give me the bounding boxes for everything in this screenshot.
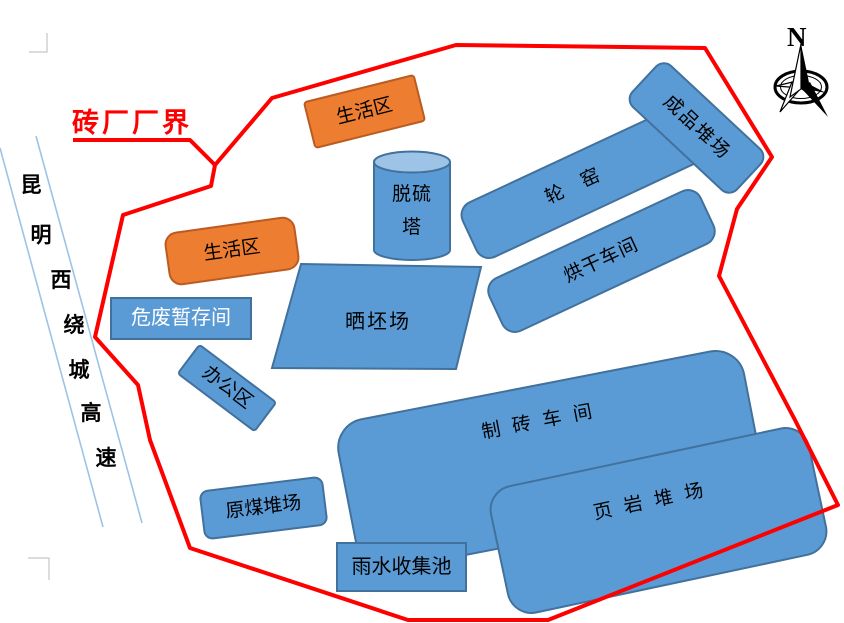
compass-blade-west (776, 80, 801, 88)
road-label-char: 速 (96, 442, 117, 472)
tower-cylinder-top (374, 152, 450, 173)
zone-label: 办公区 (198, 362, 257, 414)
brick-drying-field-label: 晒坯场 (318, 305, 438, 334)
boundary-label-leader (73, 140, 215, 165)
zone-label: 原煤堆场 (224, 493, 302, 524)
zone-hazardous-waste-storage: 危废暂存间 (110, 297, 252, 340)
compass-blade-southeast (801, 82, 828, 117)
road-label-char: 明 (31, 219, 52, 249)
zone-office-area: 办公区 (176, 343, 277, 432)
compass-rose-icon (775, 44, 828, 117)
corner-mark-bottom-left (28, 558, 49, 580)
road-label-char: 昆 (21, 169, 42, 199)
desulfurization-tower-label: 脱硫塔 (388, 178, 436, 245)
zone-living-area-top: 生活区 (302, 73, 425, 148)
zone-raw-coal-yard: 原煤堆场 (198, 476, 328, 541)
road-label-char: 绕 (64, 309, 85, 339)
compass-ring-outer (775, 71, 827, 103)
zone-living-area-left: 生活区 (163, 215, 301, 287)
road-label-char: 高 (81, 397, 102, 427)
compass-blade-east (801, 80, 826, 93)
highway-line-left (0, 148, 103, 527)
road-label-char: 西 (51, 264, 72, 294)
corner-mark-top-left (29, 33, 47, 52)
road-label-char: 城 (69, 354, 90, 384)
zone-label: 生活区 (334, 94, 395, 129)
compass-blade-southwest (780, 82, 801, 112)
site-plan-figure: 制砖车间 页岩堆场 烘干车间 轮窑 成品堆场 生活区 生活区 危废暂存间 办公区… (0, 0, 844, 623)
zone-label: 危废暂存间 (131, 307, 231, 330)
zone-label: 轮窑 (542, 157, 622, 210)
zone-label: 生活区 (202, 236, 262, 266)
zone-label: 烘干车间 (560, 234, 642, 288)
compass-n-label: N (787, 22, 807, 53)
zone-label: 页岩堆场 (591, 477, 717, 524)
zone-rainwater-pool: 雨水收集池 (336, 542, 467, 592)
zone-label: 雨水收集池 (352, 556, 452, 579)
zone-label: 制砖车间 (479, 398, 605, 443)
compass-ring-inner (781, 76, 822, 99)
factory-boundary-label: 砖厂厂界 (72, 101, 192, 140)
